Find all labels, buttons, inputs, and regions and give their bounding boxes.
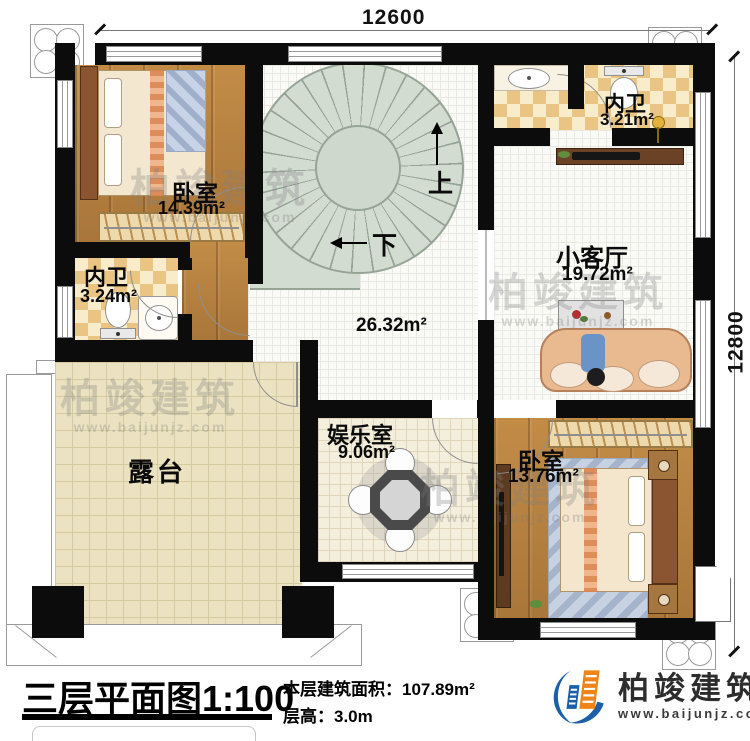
terrace-column-left	[32, 586, 84, 638]
plan-stats: 本层建筑面积：107.89m² 层高：3.0m	[283, 676, 475, 730]
wall-bathroom2-bottom-right	[612, 128, 693, 146]
room-area-entertainment: 9.06m²	[338, 442, 395, 463]
window	[695, 92, 711, 238]
window	[695, 300, 711, 428]
brand-logo: 柏竣建筑 www.baijunjz.com	[546, 666, 750, 728]
plant-icon	[530, 600, 542, 608]
room-area-bathroom2: 3.21m²	[600, 110, 654, 130]
stairs-down-label: 下	[372, 226, 397, 262]
wall-bathroom2-bottom-left	[494, 128, 550, 146]
opening-hall-living	[485, 230, 487, 320]
sofa-cushion	[638, 360, 680, 388]
bed-runner	[584, 468, 597, 592]
door-leaf-terrace	[296, 362, 298, 407]
room-area-bedroom2: 13.76m²	[508, 466, 579, 488]
window	[342, 564, 474, 579]
tv	[499, 492, 504, 576]
room-area-bathroom1: 3.24m²	[80, 286, 137, 307]
plan-scale: 1:100	[202, 678, 294, 719]
floor-area-label: 本层建筑面积：	[283, 680, 402, 699]
stairs-up-arrow-line	[436, 133, 438, 165]
wall-bathroom-left-stub-bottom	[178, 314, 192, 342]
wall-hall-living-lower	[478, 320, 494, 640]
window	[106, 46, 202, 62]
sink-drain	[527, 76, 531, 80]
room-area-living: 19.72m²	[562, 264, 633, 286]
spiral-staircase-hub	[315, 125, 401, 211]
wall-bedroom1-bottom	[75, 242, 190, 258]
wall-bathroom-left-stub-top	[178, 258, 192, 270]
bed-throw-blanket	[166, 70, 206, 152]
table-flowers-leaf	[580, 316, 588, 322]
wall-hallway-stub	[248, 258, 263, 284]
table-fruit	[604, 312, 611, 319]
right-dimension-label: 12800	[725, 310, 749, 373]
wall-bathroom2-divider	[568, 65, 584, 109]
stairs-up-label: 上	[428, 164, 453, 200]
wardrobe	[548, 420, 693, 448]
window	[57, 80, 73, 148]
wall-hall-living-upper	[478, 65, 494, 230]
top-dimension-label: 12600	[362, 6, 425, 30]
bed-headboard	[80, 66, 98, 200]
bed-pillow	[628, 532, 645, 582]
window	[540, 622, 636, 638]
top-dimension-line	[100, 30, 712, 31]
room-label-terrace: 露台	[128, 452, 186, 489]
person-head	[587, 368, 605, 386]
bed-runner	[150, 70, 164, 196]
brand-url: www.baijunjz.com	[618, 706, 750, 721]
tv	[572, 152, 640, 160]
floor-height-value: 3.0m	[334, 707, 373, 726]
wall-lamp-stem	[657, 127, 659, 143]
wall-entertainment-left	[300, 340, 318, 582]
wall-room-row-top-left	[300, 400, 432, 418]
bed-pillow	[628, 476, 645, 526]
floor-height-row: 层高：3.0m	[283, 703, 475, 730]
wall-suite-bottom	[55, 340, 253, 362]
floor-plan-page: { "dimensions": { "top": "12600", "right…	[0, 0, 750, 738]
bed-pillow	[104, 78, 122, 128]
bed-headboard	[652, 478, 678, 584]
round-table-top	[380, 480, 420, 520]
window	[288, 46, 442, 62]
terrace-floor	[55, 362, 302, 624]
plan-title-frame	[32, 726, 256, 741]
room-area-bedroom1: 14.39m²	[158, 198, 225, 219]
wall-room-row-top-right	[556, 400, 693, 418]
chimney-bay	[695, 566, 731, 622]
plan-title-underline	[22, 714, 272, 720]
brand-logo-icon	[546, 666, 612, 728]
bed-pillow	[104, 134, 122, 186]
room-area-hall: 26.32m²	[356, 315, 427, 337]
plant-icon	[558, 151, 570, 158]
floor-height-label: 层高：	[283, 707, 334, 726]
brand-name: 柏竣建筑	[618, 673, 750, 706]
wall-bedroom1-right	[245, 65, 263, 258]
floor-area-row: 本层建筑面积：107.89m²	[283, 676, 475, 703]
terrace-column-right	[282, 586, 334, 638]
wall-room-row-top-mid	[477, 400, 494, 418]
person-sitting	[581, 334, 605, 372]
plan-title: 三层平面图	[22, 678, 202, 719]
brand-text-block: 柏竣建筑 www.baijunjz.com	[618, 673, 750, 721]
window	[57, 286, 73, 338]
stairs-down-arrow-line	[341, 242, 367, 244]
floor-area-value: 107.89m²	[402, 680, 475, 699]
